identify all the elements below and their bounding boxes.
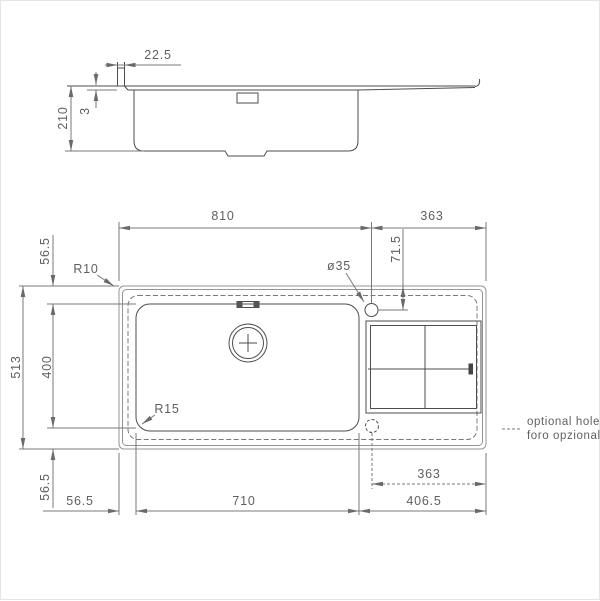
cutout-radius-label: R10: [73, 262, 98, 276]
dim-top-margin-label: 56.5: [38, 237, 52, 265]
legend-optional-hole-en: optional hole: [527, 416, 600, 428]
dim-bottom-margin-label: 56.5: [38, 473, 52, 501]
dim-bowl-front-back-label: 400: [40, 355, 54, 378]
dim-lip-width-label: 22.5: [144, 48, 172, 62]
dim-width-left-label: 810: [211, 209, 234, 223]
optional-hole: [366, 420, 379, 433]
dim-optional-hole-label: 363: [417, 467, 440, 481]
bowl-radius-leader: [142, 415, 155, 424]
side-view: 210 3 22.5: [56, 48, 480, 156]
plan-view: 810 363 71.5 ø35 R10 R15: [9, 209, 486, 515]
sink-technical-drawing: 210 3 22.5: [1, 1, 600, 601]
legend-optional-hole-it: foro opzionale: [527, 430, 600, 442]
dim-hole-offset-label: 71.5: [389, 235, 403, 263]
dim-bowl-depth: [65, 86, 144, 151]
hole-diameter-label: ø35: [327, 259, 351, 273]
dim-overall-depth-label: 513: [9, 355, 23, 378]
dim-rim-height-label: 3: [78, 107, 92, 115]
overflow-outlet-side: [237, 93, 258, 103]
side-view-profile: [67, 62, 480, 156]
drainboard-grid: [366, 321, 481, 413]
dim-drainer-width-label: 406.5: [406, 494, 441, 508]
sink-technical-drawing-page: 210 3 22.5: [0, 0, 600, 600]
tap-hole: [365, 304, 378, 317]
drain-circle: [229, 324, 267, 362]
dim-bowl-width-label: 710: [232, 494, 255, 508]
outer-edge: [119, 286, 486, 449]
cutout-radius-leader: [97, 275, 114, 286]
dim-left-margin-label: 56.5: [66, 494, 94, 508]
dim-bowl-depth-label: 210: [56, 106, 70, 129]
dim-top-widths: [119, 222, 486, 303]
dim-rim-height: [87, 72, 117, 108]
dim-width-right-label: 363: [420, 209, 443, 223]
hole-diameter-leader: [346, 273, 364, 302]
legend: optional hole foro opzionale: [502, 416, 600, 442]
bowl-radius-label: R15: [154, 402, 179, 416]
